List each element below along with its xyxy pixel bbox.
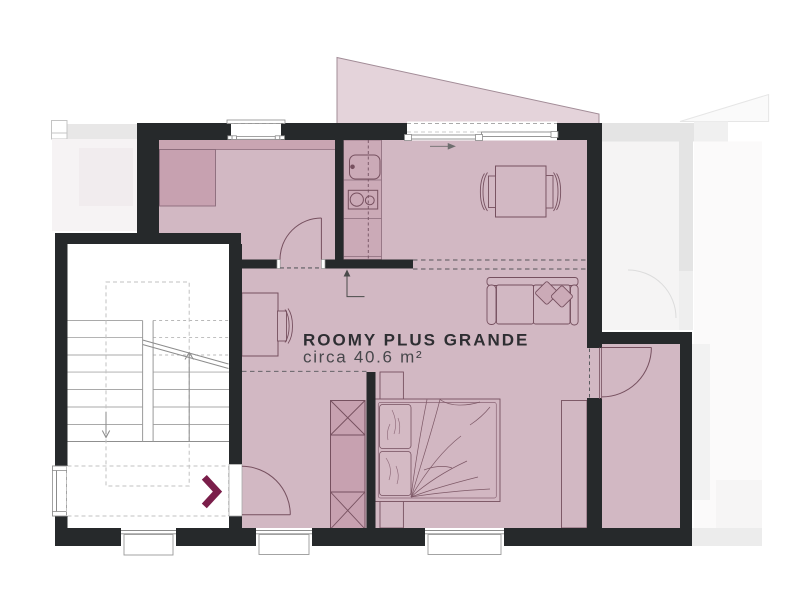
svg-text:circa 40.6 m²: circa 40.6 m² <box>303 348 423 367</box>
